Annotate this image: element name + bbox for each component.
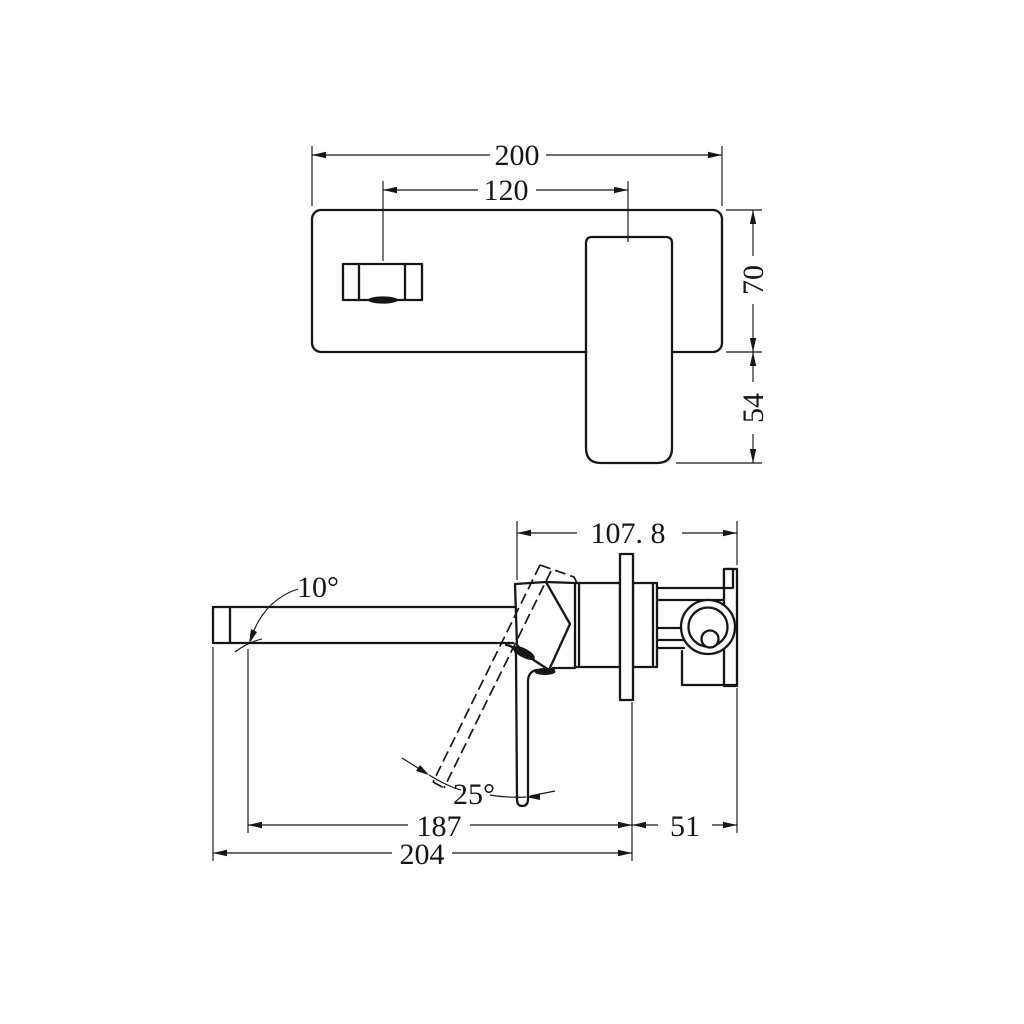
front-view: 200 120 70 54: [312, 139, 770, 463]
dim-200-label: 200: [495, 139, 540, 172]
arrowhead: [618, 850, 632, 856]
dim-outlet-to-plate: 187: [248, 649, 737, 861]
dim-handle-drop: 54: [676, 352, 770, 463]
dim-107-8-label: 107. 8: [591, 517, 666, 550]
spout-front: [343, 264, 422, 304]
arrowhead: [416, 765, 429, 775]
dim-plate-height: 70: [726, 210, 770, 352]
arrowhead: [383, 187, 397, 193]
dim-120-label: 120: [484, 174, 529, 207]
dim-plate-to-wall: 51: [632, 810, 737, 843]
arrowhead: [723, 822, 737, 828]
dim-handle-swing-angle: 25°: [402, 758, 555, 811]
arrowhead: [708, 152, 722, 158]
dim-70-label: 70: [737, 265, 770, 295]
arrowhead: [750, 352, 756, 366]
spout-aerator: [368, 296, 398, 303]
arrowhead: [750, 338, 756, 352]
dim-spout-angle: 10°: [235, 571, 339, 652]
technical-drawing-page: 200 120 70 54: [0, 0, 1024, 1024]
escutcheon-flange: [620, 554, 633, 700]
dim-51-label: 51: [670, 810, 700, 843]
dim-54-label: 54: [737, 393, 770, 423]
arrowhead: [750, 210, 756, 224]
inlet-port: [702, 631, 719, 648]
angle-25-label: 25°: [453, 778, 495, 811]
angle-10-label: 10°: [297, 571, 339, 604]
arrowhead: [248, 822, 262, 828]
arrowhead: [618, 822, 632, 828]
arrowhead: [517, 530, 531, 536]
spout-side: [213, 607, 516, 643]
arrowhead: [312, 152, 326, 158]
arrowhead: [723, 530, 737, 536]
arrowhead: [632, 822, 646, 828]
handle-lever-side: [506, 645, 554, 806]
arrowhead: [614, 187, 628, 193]
dim-204-label: 204: [400, 838, 445, 871]
bracket-slot: [724, 569, 733, 588]
dim-tip-to-plate: 204: [213, 647, 632, 871]
mixer-handle-front: [586, 237, 672, 463]
inlet-fitting: [681, 600, 735, 654]
side-view: 107. 8 10° 25° 187: [213, 517, 737, 871]
arrowhead: [213, 850, 227, 856]
spout-front-body: [343, 264, 422, 300]
arrowhead: [750, 449, 756, 463]
technical-drawing-canvas: 200 120 70 54: [0, 0, 1024, 1024]
